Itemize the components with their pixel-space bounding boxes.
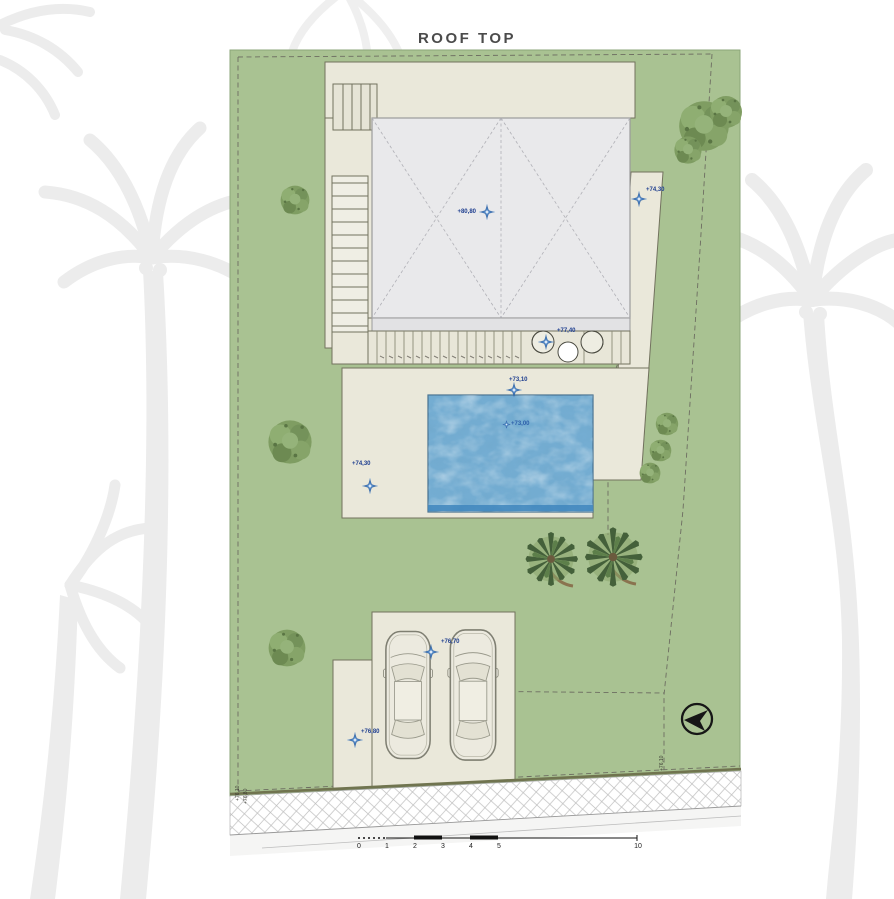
level-label-terrace-east: +74,30 [646, 187, 665, 193]
scale-label-0: 0 [357, 843, 361, 850]
swimming-pool [428, 395, 593, 512]
tree-bush [268, 420, 311, 463]
scale-label-10: 10 [634, 843, 642, 850]
level-label-driveway-west: +76,80 [361, 729, 380, 735]
tree-bush [269, 630, 306, 667]
boundary-label: +76,80 [244, 789, 249, 804]
level-label-pool-water: +73,00 [511, 421, 530, 427]
level-label-driveway-north: +76,70 [441, 639, 460, 645]
tree-bush [281, 186, 310, 215]
scale-label-5: 5 [497, 843, 501, 850]
tree-bush [674, 136, 701, 163]
site-plan-drawing [0, 0, 894, 899]
boundary-label: +76,10 [236, 786, 241, 801]
skylight-slat-box [333, 84, 377, 130]
watermark-palm-left [45, 128, 255, 899]
level-label-roof: +80,80 [446, 209, 476, 215]
tree-bush [710, 96, 742, 128]
boundary-label: +76,10 [660, 756, 665, 771]
scale-label-2: 2 [413, 843, 417, 850]
page-title: ROOF TOP [418, 30, 516, 47]
site-plan-sheet: ROOF TOP +80,80 +74,30 +77,40 +73,10 +73… [0, 0, 894, 899]
roof-vent-center [558, 342, 578, 362]
pergola-louvers [368, 331, 630, 364]
main-roof [372, 118, 630, 331]
car-left [383, 632, 432, 759]
level-label-pergola: +77,40 [557, 328, 576, 334]
tree-bush [650, 440, 672, 462]
tree-bush [640, 463, 661, 484]
scale-label-4: 4 [469, 843, 473, 850]
roof-stair-strip [332, 176, 368, 332]
level-label-pool-deck-west: +74,30 [352, 461, 371, 467]
watermark-frond-top-left [0, 9, 90, 115]
level-label-pool-deck-north: +73,10 [509, 377, 528, 383]
scale-label-3: 3 [441, 843, 445, 850]
driveway-left-strip [333, 660, 372, 790]
scale-label-1: 1 [385, 843, 389, 850]
tree-bush [656, 413, 678, 435]
car-right [448, 630, 498, 760]
pool-overflow-edge [428, 505, 593, 511]
